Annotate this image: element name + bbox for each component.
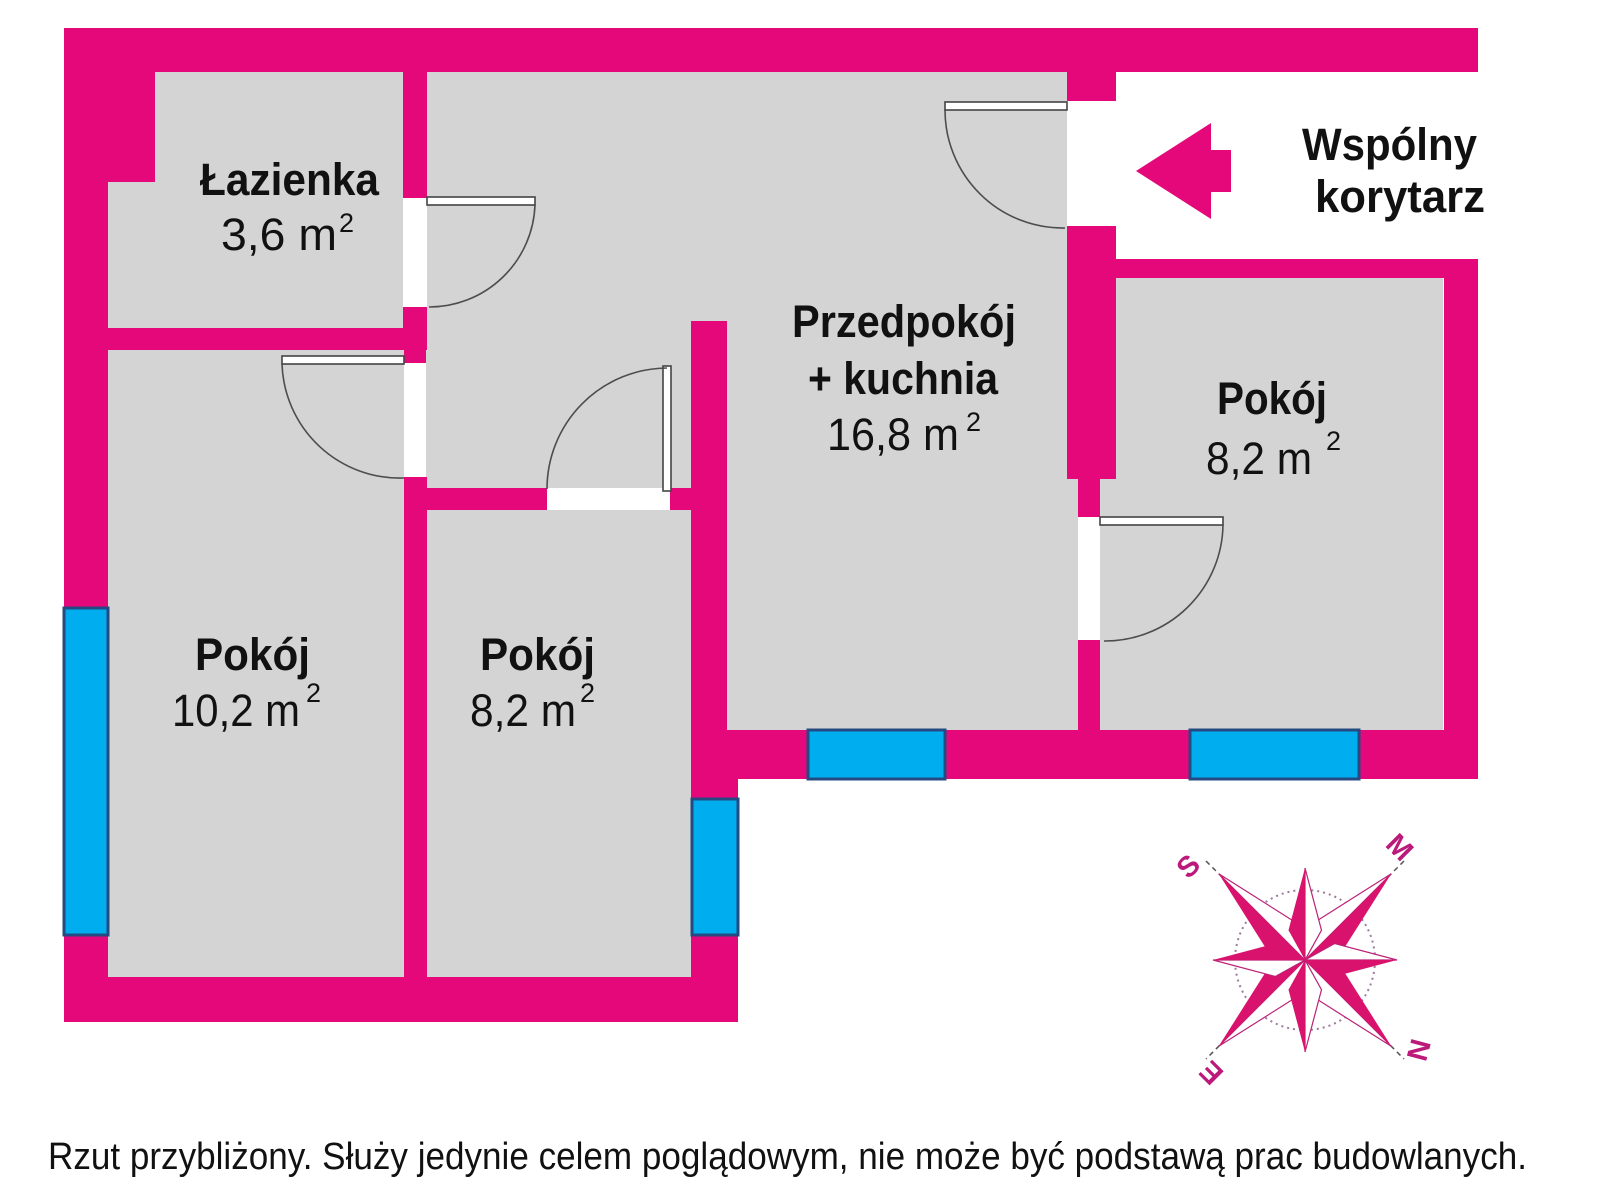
svg-text:+ kuchnia: + kuchnia: [808, 353, 999, 404]
svg-text:Rzut przybliżony. Służy jedyni: Rzut przybliżony. Służy jedynie celem po…: [48, 1136, 1527, 1178]
svg-text:2: 2: [339, 208, 354, 238]
svg-text:8,2 m: 8,2 m: [470, 685, 576, 736]
svg-text:Wspólny: Wspólny: [1302, 119, 1477, 170]
svg-text:16,8 m: 16,8 m: [827, 409, 959, 460]
svg-text:Pokój: Pokój: [1217, 373, 1327, 424]
svg-text:8,2 m: 8,2 m: [1206, 433, 1312, 484]
svg-text:2: 2: [580, 678, 595, 708]
svg-text:Przedpokój: Przedpokój: [792, 296, 1016, 347]
svg-text:3,6 m: 3,6 m: [221, 209, 337, 260]
svg-text:Pokój: Pokój: [480, 629, 595, 680]
svg-text:2: 2: [306, 678, 321, 708]
svg-text:korytarz: korytarz: [1315, 171, 1485, 222]
svg-text:Pokój: Pokój: [195, 629, 310, 680]
svg-text:2: 2: [966, 407, 981, 437]
svg-text:2: 2: [1326, 426, 1341, 456]
svg-text:Łazienka: Łazienka: [200, 154, 380, 205]
svg-text:10,2 m: 10,2 m: [172, 685, 300, 736]
